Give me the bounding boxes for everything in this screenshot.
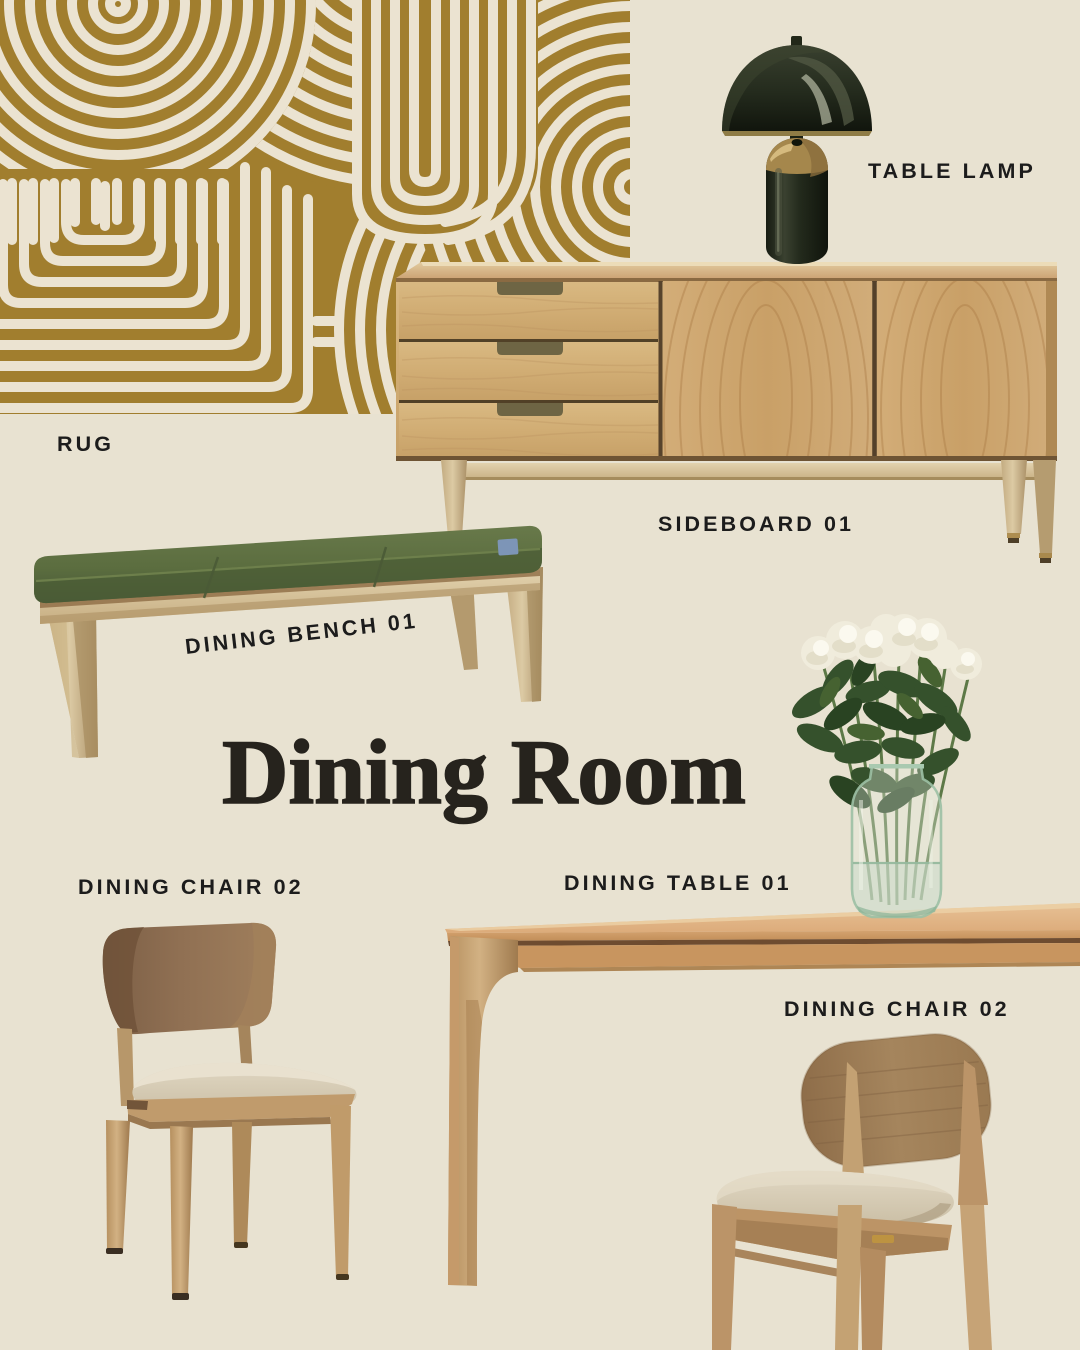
svg-text:TABLE LAMP: TABLE LAMP bbox=[868, 159, 1036, 183]
svg-text:Dining Room: Dining Room bbox=[222, 721, 746, 823]
svg-text:DINING CHAIR 02: DINING CHAIR 02 bbox=[78, 875, 304, 899]
svg-text:SIDEBOARD 01: SIDEBOARD 01 bbox=[658, 512, 854, 536]
svg-text:RUG: RUG bbox=[57, 432, 114, 456]
svg-text:DINING TABLE 01: DINING TABLE 01 bbox=[564, 871, 792, 895]
svg-text:DINING CHAIR 02: DINING CHAIR 02 bbox=[784, 997, 1010, 1021]
